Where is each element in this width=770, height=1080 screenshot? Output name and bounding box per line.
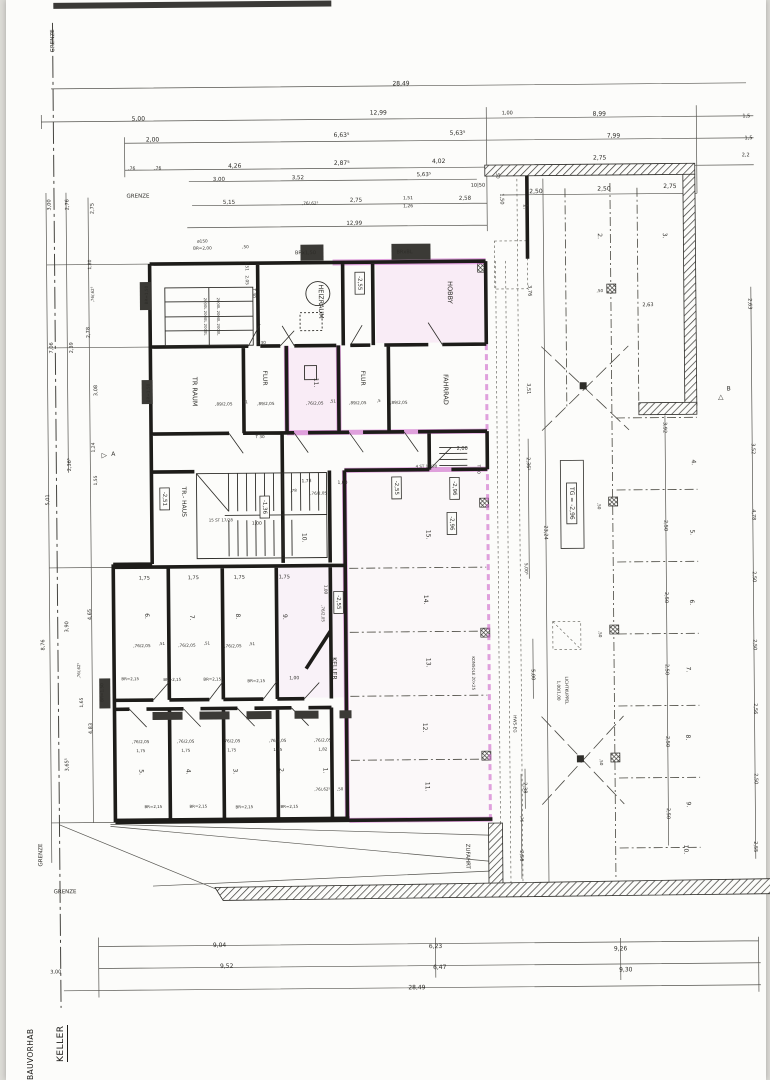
svg-text:A: A (111, 451, 116, 458)
svg-text:3,52: 3,52 (292, 175, 304, 181)
dimension-label: ,76 (519, 816, 524, 823)
tank-label: 2000L 2000L 2000L (203, 298, 208, 337)
room-label: FLUR (261, 370, 268, 385)
dimension-label: BR=1,50 (144, 285, 149, 304)
dimension-label: 1,00 (323, 585, 328, 595)
svg-text:1,24: 1,24 (91, 442, 97, 452)
parking-number: 9. (685, 801, 692, 807)
svg-text:BRx1,50: BRx1,50 (295, 250, 316, 256)
dimension-label: 12,99 (370, 109, 387, 116)
svg-text:,76/2,05: ,76/2,05 (132, 739, 150, 744)
dimension-label: 1,75 (279, 574, 290, 580)
room-label: TR.- HAUS (180, 486, 187, 518)
svg-text:GRENZE: GRENZE (50, 29, 56, 52)
svg-text:4.: 4. (184, 769, 191, 775)
dimension-label: 6,23 (429, 943, 443, 950)
svg-text:2000L 2000L 2000L: 2000L 2000L 2000L (216, 298, 221, 337)
dimension-label: 4,83 (88, 723, 94, 734)
dimension-label: BR=1,50 (99, 683, 104, 702)
dimension-label: 28,49 (392, 80, 409, 87)
svg-text:,76/,62⁵: ,76/,62⁵ (90, 286, 95, 302)
svg-text:-2,51: -2,51 (161, 492, 167, 506)
svg-text:2,75: 2,75 (350, 198, 363, 204)
dimension-label: ,76/2,05 (269, 738, 287, 743)
dimension-label: 1,80 (87, 259, 93, 269)
dimension-label: 2,50 (664, 664, 670, 675)
dimension-label: BR=2,15 (235, 804, 253, 809)
svg-text:23,24: 23,24 (542, 525, 548, 539)
dimension-label: ,76/2,05 (178, 643, 196, 648)
svg-text:-2,55: -2,55 (335, 595, 341, 610)
stair-label: 15 ST 17/28 (209, 517, 234, 522)
svg-text:GRENZE: GRENZE (54, 889, 77, 895)
dimension-label: 1,00/1,00 (556, 680, 561, 700)
svg-text:13.: 13. (425, 658, 432, 668)
svg-text:1,51: 1,51 (403, 195, 413, 201)
svg-text:BR=1,50: BR=1,50 (99, 683, 104, 702)
svg-text:2,2: 2,2 (742, 152, 750, 158)
dimension-label: 2,38 (522, 782, 528, 793)
svg-text:15 ST 17/28: 15 ST 17/28 (209, 517, 234, 522)
stair-label: 4 ST 17/30 (416, 464, 438, 469)
svg-text:BR=2,15: BR=2,15 (189, 804, 207, 809)
dimension-label: 8,76 (40, 639, 46, 650)
level-marker: -2,96 (447, 512, 457, 534)
room-number: 6. (143, 613, 150, 619)
dimension-label: 2,56 (518, 850, 524, 861)
level-marker-tg: TG = -2,96 (567, 483, 577, 524)
svg-text:ø150: ø150 (197, 239, 208, 244)
svg-text:,50: ,50 (337, 786, 344, 791)
svg-text:BR=2,15: BR=2,15 (247, 678, 265, 683)
svg-text:BRxBL: BRxBL (396, 249, 412, 255)
svg-text:ZUFAHRT: ZUFAHRT (464, 844, 470, 870)
svg-text:3.: 3. (661, 233, 668, 239)
level-marker: -1,36 (260, 496, 270, 518)
room-label: HOBBY (446, 281, 454, 304)
svg-text:4,26: 4,26 (228, 163, 242, 170)
svg-text:1,75: 1,75 (234, 575, 245, 581)
svg-text:△: △ (718, 393, 724, 401)
svg-text:5,00⁵: 5,00⁵ (523, 563, 529, 575)
dimension-label: 6,63⁵ (334, 132, 350, 139)
svg-text:9,52: 9,52 (220, 963, 234, 970)
svg-text:1.: 1. (321, 768, 328, 774)
svg-text:2,75: 2,75 (90, 203, 96, 214)
svg-text:BR=2,15: BR=2,15 (235, 804, 253, 809)
svg-text:,76/2,05: ,76/2,05 (310, 491, 327, 496)
dimension-label: ,50 (599, 759, 604, 766)
svg-text:4,83: 4,83 (88, 723, 94, 734)
dimension-label: ,51 (249, 641, 256, 646)
svg-text:FAHRRAD: FAHRRAD (442, 374, 450, 405)
dimension-label: 1,00 (337, 480, 347, 486)
svg-text:2,00: 2,00 (457, 446, 468, 452)
dimension-label: 2,36⁵ (67, 458, 73, 471)
svg-text:2,75: 2,75 (663, 183, 677, 190)
svg-text:1,00: 1,00 (323, 585, 328, 595)
parking-number: 8. (684, 734, 691, 740)
svg-text:,50: ,50 (597, 503, 602, 510)
svg-text:BR=2,00: BR=2,00 (193, 245, 212, 250)
dimension-label: BR=2,15 (121, 676, 139, 681)
dimension-label: 2,2 (742, 152, 750, 158)
svg-text:T 30: T 30 (256, 340, 267, 345)
svg-text:,89/2,05: ,89/2,05 (215, 401, 233, 406)
svg-text:GRENZE: GRENZE (127, 194, 150, 200)
dimension-label: BR=2,00 (193, 245, 212, 250)
dimension-label: BR=2,15 (163, 677, 181, 682)
dimension-label: ,76/2,05 (223, 738, 241, 743)
room-label: FLUR (359, 371, 366, 386)
parking-number: 7. (685, 666, 692, 672)
svg-text:2,63: 2,63 (642, 302, 653, 308)
svg-text:T 30: T 30 (252, 287, 257, 298)
dimension-label: 1,5 (745, 135, 753, 141)
parking-number: 5. (688, 529, 695, 535)
dimension-label: ,76/2,05 (133, 643, 151, 648)
svg-text:10.: 10. (682, 845, 689, 855)
room-number: 7. (188, 615, 195, 621)
dimension-label: 2,75 (663, 183, 677, 190)
svg-text:2,00: 2,00 (146, 136, 160, 143)
svg-text:1,75: 1,75 (227, 747, 236, 752)
svg-text:BR=2,15: BR=2,15 (144, 804, 162, 809)
floor-plan-canvas: GRENZE28,495,0012,991,008,991,52,006,63⁵… (0, 0, 770, 1080)
dimension-label: ,76/2,05 (310, 491, 327, 496)
dimension-label: 3,00 (213, 177, 226, 183)
svg-text:,51: ,51 (242, 399, 249, 404)
dimension-label: 2,39 (69, 342, 75, 353)
svg-text:BR=2,15: BR=2,15 (203, 676, 221, 681)
svg-text:5.: 5. (688, 529, 695, 535)
dimension-label: ,50 (242, 244, 249, 249)
svg-text:KELLER: KELLER (331, 657, 338, 679)
svg-text:2,36⁵: 2,36⁵ (525, 457, 531, 470)
svg-text:,76/,62⁵: ,76/,62⁵ (314, 786, 330, 791)
svg-text:1,55: 1,55 (93, 475, 99, 485)
dimension-label: 5,63⁵ (417, 171, 432, 178)
dimension-label: 3,00 (47, 199, 53, 210)
svg-text:GRENZE: GRENZE (38, 843, 44, 866)
svg-text:-2,96: -2,96 (448, 516, 454, 531)
dimension-label: 4,78 (750, 509, 756, 520)
svg-text:2,58: 2,58 (459, 196, 472, 202)
dimension-label: 2,50 (529, 188, 543, 195)
svg-text:7.: 7. (188, 615, 195, 621)
dimension-label: 1,00 (252, 521, 262, 527)
svg-text:2,56: 2,56 (518, 850, 524, 861)
svg-text:-2,55: -2,55 (356, 276, 362, 291)
dimension-label: ,76/2,05 (177, 739, 195, 744)
dimension-label: 3,65⁵ (64, 758, 70, 771)
svg-text:T 30: T 30 (476, 464, 481, 475)
dimension-label: ,5 (377, 398, 381, 403)
svg-text:1.: 1. (522, 204, 529, 210)
svg-text:3,92: 3,92 (661, 422, 667, 433)
svg-text:2,63: 2,63 (746, 298, 752, 309)
svg-text:11.: 11. (312, 378, 319, 388)
dimension-label: 10|50 (471, 183, 485, 189)
svg-text:1,00: 1,00 (337, 480, 347, 486)
svg-text:HEIZRAUM: HEIZRAUM (317, 284, 325, 319)
room-label: KELLER (331, 657, 338, 679)
svg-text:2,75: 2,75 (593, 155, 607, 162)
svg-text:1,50: 1,50 (498, 193, 504, 204)
dimension-label: 2,63 (746, 298, 752, 309)
svg-text:3,52: 3,52 (750, 443, 756, 454)
dimension-label: 3,90 (64, 621, 70, 632)
svg-text:FLUR: FLUR (261, 370, 268, 385)
room-label: HEIZRAUM (317, 284, 325, 319)
svg-text:TR.- HAUS: TR.- HAUS (180, 486, 187, 518)
dimension-label: ,50 (597, 503, 602, 510)
parking-number: 1. (522, 204, 529, 210)
svg-text:2,55: 2,55 (752, 841, 758, 852)
dimension-label: 3,52 (750, 443, 756, 454)
dimension-label: 4,65 (87, 609, 93, 620)
room-number: 9. (281, 614, 288, 620)
svg-text:1,5: 1,5 (742, 113, 750, 119)
room-number: 2. (277, 768, 284, 774)
dimension-label: 2,50 (662, 520, 668, 531)
svg-text:5.: 5. (137, 769, 144, 775)
section-marker-b: B (727, 385, 731, 392)
hidden-lines (494, 178, 583, 889)
dimension-label: 2,50 (597, 186, 611, 193)
svg-text:BR=1,50: BR=1,50 (144, 285, 149, 304)
svg-text:,89/2,05: ,89/2,05 (349, 400, 367, 405)
svg-text:BR=2,15: BR=2,15 (280, 804, 298, 809)
dimension-label: ,51 (159, 641, 166, 646)
svg-text:6,47: 6,47 (433, 964, 447, 971)
level-marker: -2,55 (392, 477, 402, 499)
svg-text:7,99: 7,99 (607, 132, 621, 139)
svg-text:12,99: 12,99 (370, 109, 387, 116)
dimension-label: 9,26 (614, 945, 628, 952)
dimension-label: 1,65 (79, 697, 85, 707)
dimension-label: 2,58 (459, 196, 472, 202)
dimension-label: 28,49 (408, 984, 425, 991)
konsole-label: KONSOLE 20×25 (471, 656, 476, 690)
dimension-label: 5,63⁵ (450, 130, 466, 137)
svg-text:1,75: 1,75 (279, 574, 290, 580)
svg-text:3,00: 3,00 (47, 199, 53, 210)
svg-text:,76/2,05: ,76/2,05 (321, 605, 326, 622)
dimension-label: 2,50 (665, 808, 671, 819)
svg-text:,76/2,05: ,76/2,05 (269, 738, 287, 743)
dimension-label: 3,76 (526, 285, 532, 296)
dimension-label: 23,24 (542, 525, 548, 539)
svg-text:1,00/1,00: 1,00/1,00 (556, 680, 561, 700)
dimension-label: 1,82 (318, 747, 327, 752)
dimension-label: 1,24 (91, 442, 97, 452)
svg-text:BR=2,15: BR=2,15 (121, 676, 139, 681)
svg-text:,50: ,50 (598, 631, 603, 638)
svg-text:7.: 7. (685, 666, 692, 672)
svg-text:5,63⁵: 5,63⁵ (450, 130, 466, 137)
parking-number: 15. (424, 530, 431, 540)
dimension-label: ø150 (197, 239, 208, 244)
svg-text:,76/2,05: ,76/2,05 (306, 401, 324, 406)
svg-text:2,05: 2,05 (245, 276, 250, 286)
svg-text:1,65: 1,65 (79, 697, 85, 707)
svg-text:,50: ,50 (494, 171, 500, 178)
svg-text:14.: 14. (422, 595, 429, 605)
svg-text:,51: ,51 (159, 641, 166, 646)
section-marker-a: A (111, 451, 116, 458)
svg-text:,76: ,76 (128, 166, 135, 172)
level-marker: -2,96 (450, 477, 460, 499)
dimension-label: 2,75 (593, 155, 607, 162)
dimension-label: 1,51 (403, 195, 413, 201)
svg-text:KONSOLE 20×25: KONSOLE 20×25 (471, 656, 476, 690)
dimension-label: ,50 (494, 171, 500, 178)
dimension-label: 1,75 (181, 748, 190, 753)
dimension-label: 2,50 (664, 736, 670, 747)
svg-text:8,99: 8,99 (593, 111, 607, 118)
dimension-label: 2,75 (90, 203, 96, 214)
dimension-label: ,76/2,05 (132, 739, 150, 744)
svg-text:,50: ,50 (596, 288, 603, 293)
parking-number: 13. (425, 658, 432, 668)
dimension-label: ,76/,62⁵ (76, 662, 81, 678)
dimension-label: 1,00 (502, 110, 513, 116)
svg-text:1,75: 1,75 (188, 575, 199, 581)
aisle-cross-marks (538, 346, 632, 805)
svg-text:10.: 10. (300, 533, 307, 543)
svg-text:B: B (727, 385, 731, 392)
dimension-label: 1,75 (273, 747, 282, 752)
lichtkuppel-label: LICHTKUPPEL (564, 676, 569, 705)
svg-text:2,50: 2,50 (664, 664, 670, 675)
dimension-label: BR=2,15 (280, 804, 298, 809)
svg-text:12.: 12. (421, 723, 428, 733)
dimension-label: 1,75 (227, 747, 236, 752)
svg-text:5,63⁵: 5,63⁵ (417, 171, 432, 178)
dimension-label: BR=1,50 (146, 383, 151, 402)
svg-text:2,50: 2,50 (753, 773, 759, 784)
svg-text:2.: 2. (277, 768, 284, 774)
dimension-label: ,76/2,05 (321, 605, 326, 622)
dimension-label: 7,06 (49, 342, 55, 353)
parking-number: 12. (421, 723, 428, 733)
svg-text:3.: 3. (231, 768, 238, 774)
project-title: BAUVORHAB (26, 1029, 35, 1080)
svg-text:,78: ,78 (290, 488, 297, 493)
svg-text:15.: 15. (424, 530, 431, 540)
dimension-label: 1,50 (498, 193, 504, 204)
svg-text:1,80: 1,80 (87, 259, 93, 269)
svg-text:,76/2,05: ,76/2,05 (177, 739, 195, 744)
dimension-label: BR=2,15 (203, 676, 221, 681)
dimension-label: 1,78 (301, 478, 311, 484)
svg-text:TR RAUM: TR RAUM (191, 376, 199, 407)
dimension-label: 5,00 (132, 116, 146, 123)
svg-text:,51: ,51 (249, 641, 256, 646)
svg-text:6,63⁵: 6,63⁵ (334, 132, 350, 139)
svg-text:2,56: 2,56 (752, 703, 758, 714)
svg-text:12,99: 12,99 (346, 221, 362, 227)
svg-text:1,75: 1,75 (273, 747, 282, 752)
dimension-label: ,76/,62⁵ (90, 286, 95, 302)
column-markers (478, 262, 620, 763)
dimension-label: 5,01 (45, 494, 51, 505)
svg-text:2,76: 2,76 (65, 199, 71, 210)
dimension-label: ,76 (154, 165, 161, 171)
svg-text:28,49: 28,49 (408, 984, 425, 991)
dimension-label: 2,50 (663, 592, 669, 603)
dimension-label: ,89/2,05 (215, 401, 233, 406)
svg-text:,51: ,51 (330, 398, 337, 403)
dimension-label: 8,99 (593, 111, 607, 118)
dimension-label: 1,55 (93, 475, 99, 485)
svg-text:2,50: 2,50 (529, 188, 543, 195)
svg-text:10|50: 10|50 (471, 183, 485, 189)
svg-text:-2,55: -2,55 (393, 481, 399, 496)
dimension-label: 2,50 (753, 773, 759, 784)
svg-text:,76: ,76 (519, 816, 524, 823)
dimension-label: 9,30 (619, 966, 633, 973)
svg-text:9,30: 9,30 (619, 966, 633, 973)
dimension-label: ,51 (330, 398, 337, 403)
svg-text:BR=2,15: BR=2,15 (163, 677, 181, 682)
parking-number: 2. (596, 233, 603, 239)
svg-text:,76/2,05: ,76/2,05 (178, 643, 196, 648)
dimension-label: 6,47 (433, 964, 447, 971)
svg-text:3,00: 3,00 (213, 177, 226, 183)
svg-text:2000L 2000L 2000L: 2000L 2000L 2000L (203, 298, 208, 337)
svg-text:1,75: 1,75 (181, 748, 190, 753)
room-label: TR RAUM (191, 376, 199, 407)
svg-text:1,51: 1,51 (245, 262, 250, 272)
room-number: 11. (312, 378, 319, 388)
door-label: T 30 (476, 464, 481, 475)
svg-text:FLUR: FLUR (359, 371, 366, 386)
dimension-label: 2,78 (86, 327, 92, 338)
svg-text:8.: 8. (684, 734, 691, 740)
room-label: FAHRRAD (442, 374, 450, 405)
svg-text:1,75: 1,75 (136, 748, 145, 753)
svg-text:5,00: 5,00 (132, 116, 146, 123)
svg-text:2,50: 2,50 (751, 639, 757, 650)
room-number: 3. (231, 768, 238, 774)
dimension-label: ,89/2,05 (257, 401, 275, 406)
dimension-label: ,51 (204, 641, 211, 646)
svg-text:9,26: 9,26 (614, 945, 628, 952)
svg-text:2,50: 2,50 (662, 520, 668, 531)
svg-text:8.: 8. (234, 613, 241, 619)
svg-text:,50: ,50 (242, 244, 249, 249)
svg-text:6.: 6. (143, 613, 150, 619)
svg-text:4,02: 4,02 (432, 158, 446, 165)
parking-number: 3. (661, 233, 668, 239)
sheet-title: KELLER (56, 1025, 68, 1062)
dimension-label: ,76/2,05 (314, 737, 332, 742)
svg-text:BR=1,50: BR=1,50 (146, 383, 151, 402)
dimension-label: ,50 (598, 631, 603, 638)
dimension-label: BRxBL (396, 249, 412, 255)
dimension-label: 4,02 (432, 158, 446, 165)
dimension-label: 2,50 (751, 639, 757, 650)
parking-number: 11. (424, 782, 431, 792)
dimension-label: 1,26 (403, 203, 413, 209)
dimension-label: ,89/2,05 (349, 400, 367, 405)
svg-text:11.: 11. (424, 782, 431, 792)
svg-text:1,75: 1,75 (139, 576, 150, 582)
section-arrow-icon: ▷ (102, 451, 108, 459)
svg-text:3,51: 3,51 (525, 383, 531, 394)
